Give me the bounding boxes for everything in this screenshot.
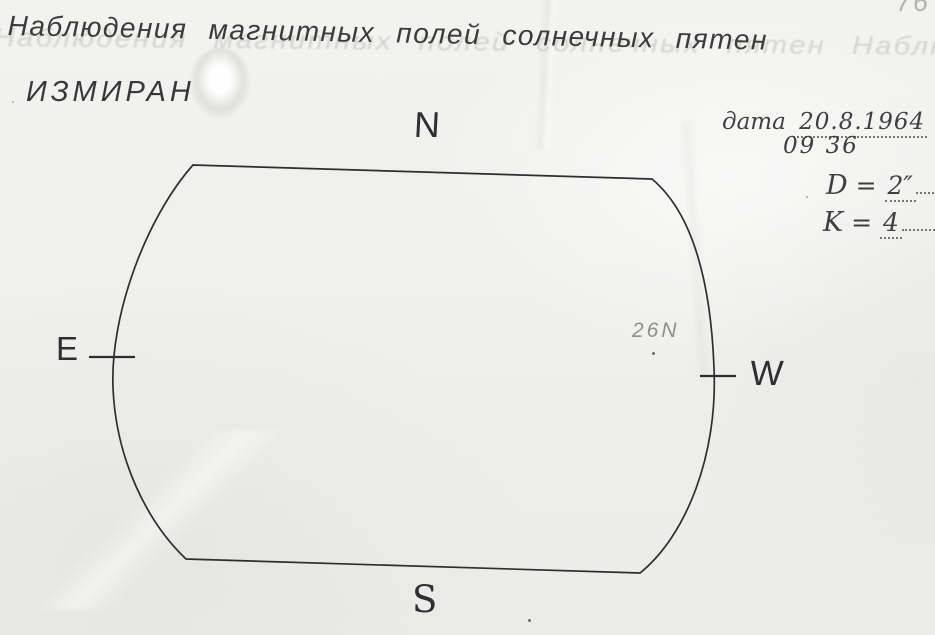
sunspot-outline-drawing (0, 0, 935, 635)
pencil-speck (652, 352, 655, 355)
pencil-speck (806, 196, 808, 198)
scanned-observation-sheet: Наблюдения магнитных полей солнечных пят… (0, 0, 935, 635)
compass-label-east: E (56, 330, 78, 368)
compass-label-north: N (413, 104, 441, 146)
sunspot-annotation: 26N (632, 319, 680, 343)
compass-label-south: S (412, 578, 437, 621)
compass-label-west: W (749, 354, 785, 394)
pencil-speck (528, 619, 531, 622)
sunspot-outline (113, 165, 715, 573)
pencil-speck (12, 101, 14, 103)
